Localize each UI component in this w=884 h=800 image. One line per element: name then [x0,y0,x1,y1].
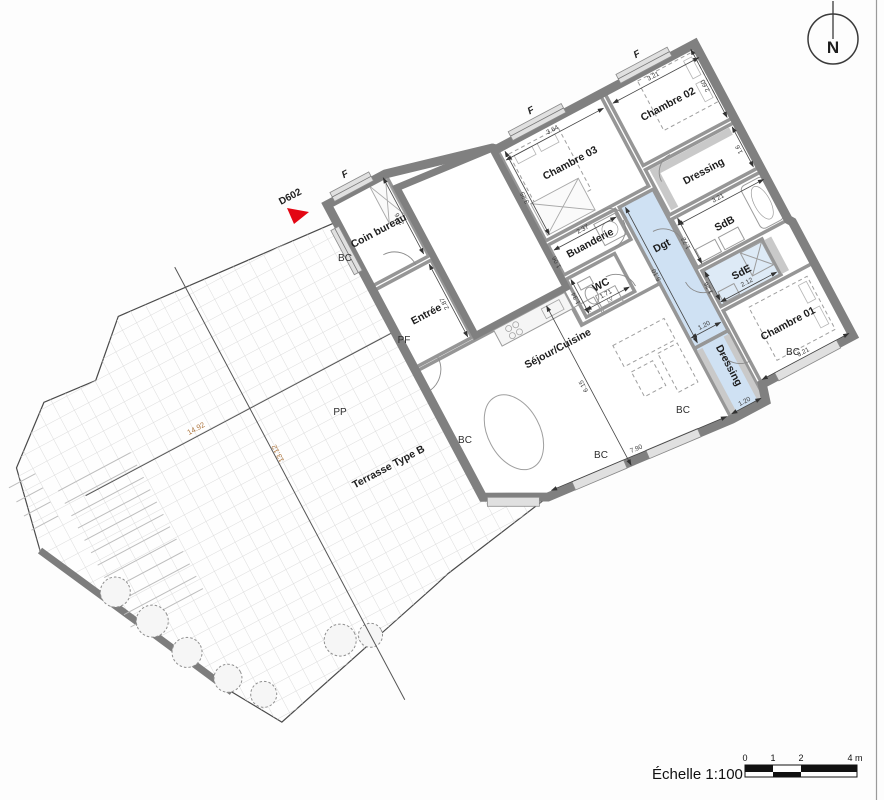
scale-tick: 4 m [847,753,862,763]
window-label-f: F [526,104,537,117]
entrance-arrow-icon [287,208,309,224]
bay-window-icon [487,497,539,506]
bay-label-bc: BC [338,253,352,264]
bay-label-bc: BC [786,347,800,358]
door-label-pp: PP [333,407,347,418]
scale-label: Échelle 1:100 [652,766,743,783]
window-label-f: F [632,48,643,61]
flat-ref-label: D602 [277,187,304,208]
bay-label-bc: BC [594,450,608,461]
flat-reference: D602 [277,187,309,224]
bay-label-bc: BC [676,405,690,416]
door-label-pf: PF [398,335,411,346]
rotated-plan: 14.92 13.12 Terrasse Type B [0,0,884,800]
window-label-f: F [340,168,351,181]
north-label: N [827,38,839,57]
scale-tick: 2 [798,753,803,763]
north-compass: N [808,1,858,64]
floor-plan-svg: 14.92 13.12 Terrasse Type B [0,0,884,800]
bay-label-bc: BC [458,435,472,446]
scale-bar: Échelle 1:100 0 1 2 4 m [652,753,863,783]
drawing-sheet: 14.92 13.12 Terrasse Type B [0,0,884,800]
scale-tick: 1 [770,753,775,763]
scale-tick: 0 [742,753,747,763]
